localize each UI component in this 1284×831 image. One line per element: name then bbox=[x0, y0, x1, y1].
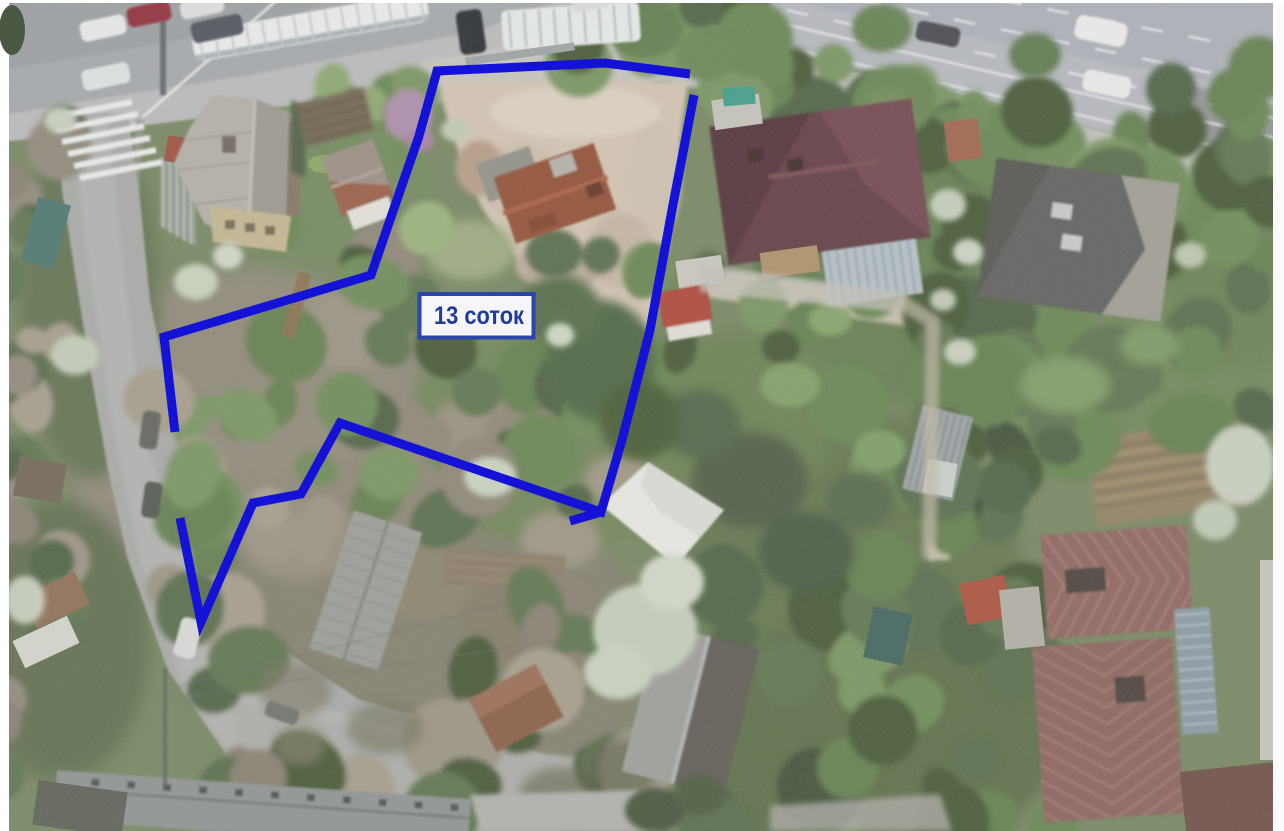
svg-text:13 соток: 13 соток bbox=[434, 302, 524, 330]
